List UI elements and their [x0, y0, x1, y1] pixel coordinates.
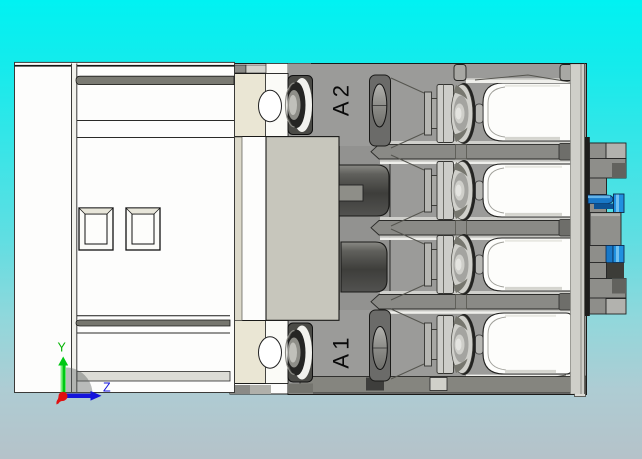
svg-text:Y: Y: [58, 341, 67, 355]
svg-text:A2: A2: [329, 81, 354, 116]
svg-text:Z: Z: [103, 381, 111, 395]
svg-text:A1: A1: [329, 333, 354, 368]
